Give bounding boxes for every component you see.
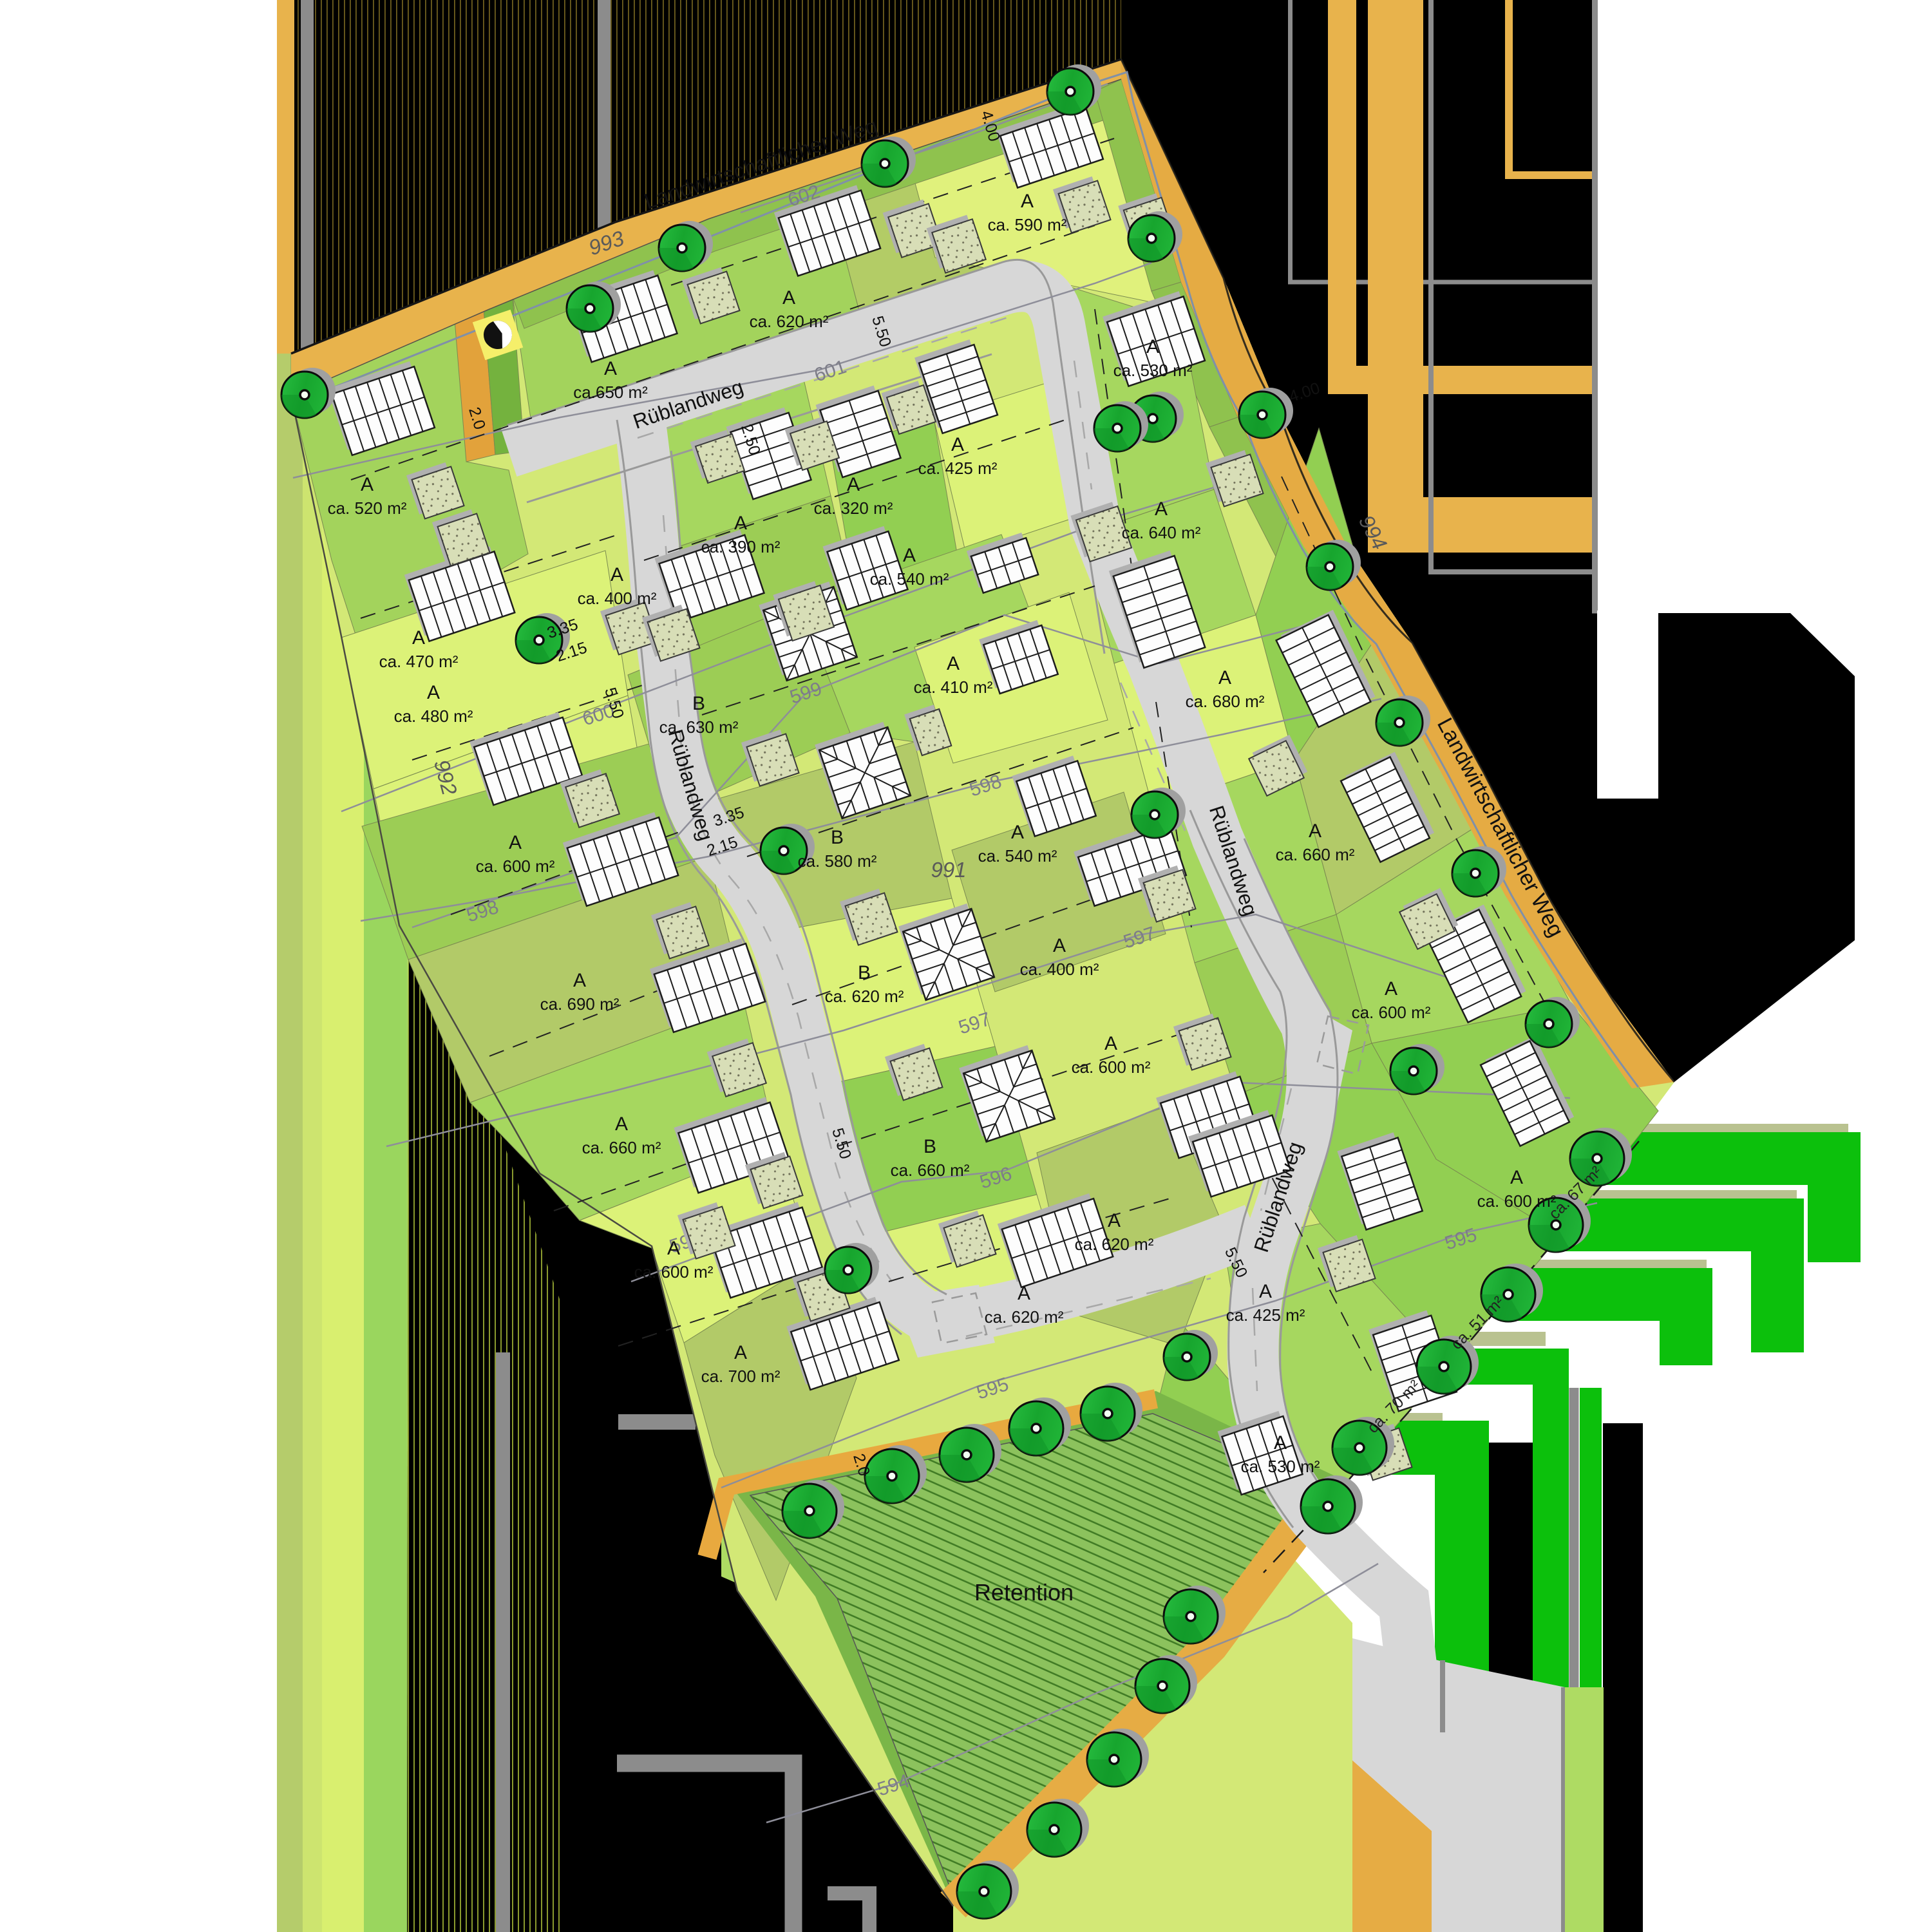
- svg-text:A: A: [1259, 1281, 1272, 1302]
- svg-text:A: A: [1510, 1167, 1523, 1188]
- svg-text:ca. 620 m²: ca. 620 m²: [985, 1307, 1064, 1327]
- svg-text:ca. 660 m²: ca. 660 m²: [1276, 845, 1355, 864]
- svg-text:A: A: [1018, 1283, 1030, 1304]
- svg-text:A: A: [1274, 1432, 1287, 1454]
- svg-text:A: A: [1108, 1210, 1121, 1231]
- svg-text:ca. 620 m²: ca. 620 m²: [825, 987, 904, 1006]
- svg-text:A: A: [1309, 820, 1321, 842]
- svg-text:991: 991: [931, 858, 966, 882]
- svg-text:A: A: [361, 474, 374, 495]
- svg-text:A: A: [1155, 498, 1168, 520]
- svg-text:A: A: [615, 1113, 628, 1135]
- svg-text:ca. 425 m²: ca. 425 m²: [918, 459, 998, 478]
- svg-text:A: A: [1021, 191, 1034, 212]
- svg-text:ca. 590 m²: ca. 590 m²: [988, 215, 1067, 234]
- svg-text:A: A: [734, 513, 747, 534]
- svg-text:ca. 540 m²: ca. 540 m²: [978, 846, 1057, 866]
- svg-text:A: A: [604, 358, 617, 379]
- svg-text:A: A: [667, 1238, 680, 1259]
- svg-text:A: A: [509, 832, 522, 853]
- svg-text:A: A: [1218, 667, 1231, 688]
- svg-text:ca. 470 m²: ca. 470 m²: [379, 652, 459, 671]
- svg-text:ca. 520 m²: ca. 520 m²: [328, 498, 407, 518]
- svg-text:ca. 600 m²: ca. 600 m²: [1072, 1057, 1151, 1077]
- svg-text:ca. 620 m²: ca. 620 m²: [750, 312, 829, 331]
- svg-text:ca. 530 m²: ca. 530 m²: [1113, 361, 1193, 380]
- svg-text:ca. 690 m²: ca. 690 m²: [540, 994, 620, 1014]
- svg-text:A: A: [1385, 978, 1397, 999]
- svg-text:A: A: [1146, 336, 1159, 357]
- svg-text:ca. 600 m²: ca. 600 m²: [634, 1262, 714, 1282]
- svg-text:ca. 540 m²: ca. 540 m²: [870, 569, 949, 589]
- svg-text:ca. 600 m²: ca. 600 m²: [1352, 1003, 1431, 1022]
- svg-text:ca. 600 m²: ca. 600 m²: [476, 857, 555, 876]
- svg-text:ca. 580 m²: ca. 580 m²: [798, 851, 877, 871]
- svg-text:A: A: [951, 434, 964, 455]
- svg-text:ca. 660 m²: ca. 660 m²: [891, 1160, 970, 1180]
- svg-text:ca. 640 m²: ca. 640 m²: [1122, 523, 1201, 542]
- svg-text:A: A: [573, 970, 586, 991]
- svg-text:B: B: [692, 693, 705, 714]
- svg-text:ca. 425 m²: ca. 425 m²: [1226, 1305, 1305, 1325]
- svg-text:A: A: [782, 287, 795, 308]
- svg-text:A: A: [611, 564, 623, 585]
- svg-text:A: A: [412, 627, 425, 649]
- svg-text:ca. 660 m²: ca. 660 m²: [582, 1138, 661, 1157]
- svg-text:A: A: [1104, 1033, 1117, 1054]
- svg-text:ca. 530 m²: ca. 530 m²: [1241, 1457, 1320, 1476]
- svg-text:A: A: [1053, 935, 1066, 956]
- svg-text:A: A: [734, 1342, 747, 1363]
- svg-text:A: A: [427, 682, 440, 703]
- svg-text:Retention: Retention: [974, 1579, 1074, 1605]
- svg-text:ca. 320 m²: ca. 320 m²: [814, 498, 893, 518]
- svg-text:ca. 600 m²: ca. 600 m²: [1477, 1191, 1557, 1211]
- svg-text:A: A: [947, 653, 960, 674]
- svg-text:B: B: [923, 1136, 936, 1157]
- svg-text:ca. 620 m²: ca. 620 m²: [1075, 1235, 1154, 1254]
- svg-text:ca. 400 m²: ca. 400 m²: [578, 589, 657, 608]
- svg-text:ca. 480 m²: ca. 480 m²: [394, 706, 473, 726]
- svg-text:B: B: [831, 827, 844, 848]
- svg-text:B: B: [858, 962, 871, 983]
- svg-text:ca. 400 m²: ca. 400 m²: [1020, 960, 1099, 979]
- svg-text:ca. 680 m²: ca. 680 m²: [1186, 692, 1265, 711]
- svg-text:ca. 390 m²: ca. 390 m²: [701, 537, 781, 556]
- svg-text:A: A: [847, 474, 860, 495]
- svg-text:ca. 700 m²: ca. 700 m²: [701, 1367, 781, 1386]
- svg-text:ca.650 m²: ca.650 m²: [573, 383, 648, 402]
- svg-text:A: A: [1011, 822, 1024, 843]
- svg-text:A: A: [903, 545, 916, 566]
- svg-text:ca. 410 m²: ca. 410 m²: [914, 677, 993, 697]
